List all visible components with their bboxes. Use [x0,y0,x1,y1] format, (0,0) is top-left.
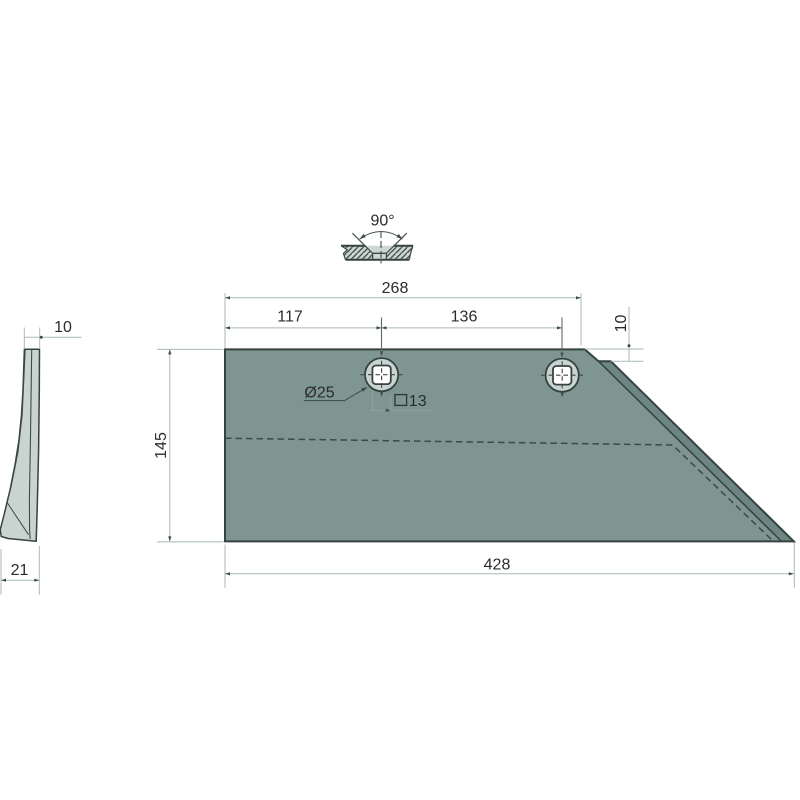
svg-text:268: 268 [382,280,409,297]
svg-text:428: 428 [484,556,511,573]
svg-text:21: 21 [11,562,29,579]
svg-text:145: 145 [153,432,170,459]
svg-text:10: 10 [613,315,630,333]
svg-text:117: 117 [277,309,303,326]
svg-text:10: 10 [54,319,72,336]
svg-text:90°: 90° [370,213,394,230]
svg-text:13: 13 [409,393,427,410]
svg-text:136: 136 [451,309,478,326]
svg-text:Ø25: Ø25 [304,385,334,402]
